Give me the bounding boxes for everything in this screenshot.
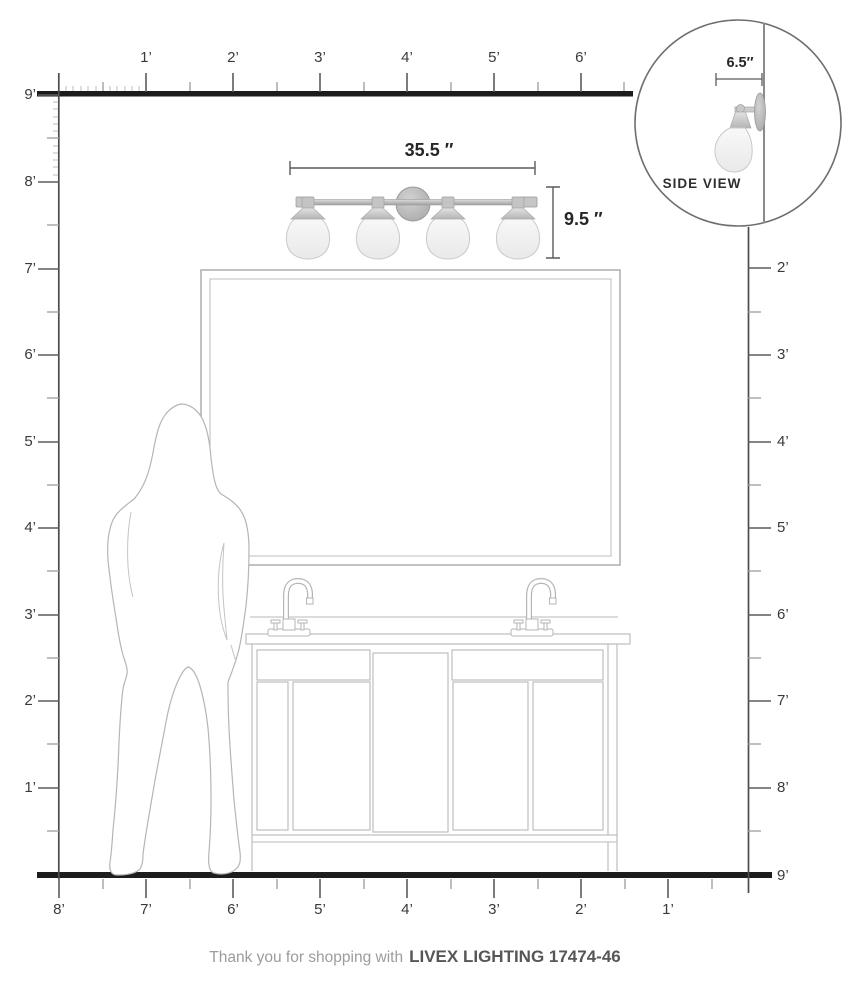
top-ruler-label: 4’ (401, 49, 413, 67)
top-ruler-label: 1’ (140, 49, 152, 67)
bottom-ruler-label: 8’ (53, 901, 65, 919)
top-ruler-label: 3’ (314, 49, 326, 67)
top-ruler-minor-ticks (103, 82, 624, 91)
footer-product-code: LIVEX LIGHTING 17474-46 (409, 947, 621, 966)
side-view-inset (635, 20, 841, 226)
glass-shade (286, 197, 329, 259)
left-ruler-label: 2’ (0, 692, 36, 710)
vanity-cabinet (246, 617, 630, 871)
left-ruler-label: 1’ (0, 779, 36, 797)
bottom-ruler (59, 879, 712, 898)
footer-thank-you-text: Thank you for shopping with (209, 949, 403, 966)
top-ruler-label: 6’ (575, 49, 587, 67)
left-ruler-label: 3’ (0, 606, 36, 624)
bottom-ruler-label: 7’ (140, 901, 152, 919)
fixture-height-dimension: 9.5 ″ (564, 209, 603, 230)
bottom-ruler-label: 3’ (488, 901, 500, 919)
glass-shade (426, 197, 469, 259)
right-ruler-label: 5’ (777, 519, 789, 537)
right-ruler-floor-label: 9’ (777, 867, 789, 885)
right-ruler-label: 7’ (777, 692, 789, 710)
bottom-ruler-label: 1’ (662, 901, 674, 919)
floor-line (37, 872, 772, 878)
fixture-bar (298, 200, 537, 206)
left-ruler-label: 5’ (0, 433, 36, 451)
height-dimension-line (546, 187, 560, 258)
ceiling-line (37, 91, 633, 97)
right-ruler-label: 2’ (777, 259, 789, 277)
glass-shade (356, 197, 399, 259)
footer-note: Thank you for shopping withLIVEX LIGHTIN… (0, 947, 830, 967)
width-dimension-line (290, 161, 535, 175)
fixture-width-dimension: 35.5 ″ (405, 140, 454, 161)
faucet-right (511, 581, 556, 636)
bottom-ruler-label: 5’ (314, 901, 326, 919)
bottom-ruler-label: 4’ (401, 901, 413, 919)
bottom-ruler-label: 2’ (575, 901, 587, 919)
right-ruler-label: 6’ (777, 606, 789, 624)
right-ruler-minor-ticks (748, 312, 761, 831)
top-ruler-label: 2’ (227, 49, 239, 67)
side-view-label: SIDE VIEW (663, 176, 742, 191)
mirror (201, 270, 620, 565)
vanity-light-fixture (286, 187, 539, 259)
left-ruler-label: 9’ (0, 86, 36, 104)
left-ruler-label: 8’ (0, 173, 36, 191)
faucet-left (268, 581, 313, 636)
right-ruler-label: 3’ (777, 346, 789, 364)
left-ruler (38, 73, 59, 879)
right-ruler-label: 8’ (777, 779, 789, 797)
left-ruler-label: 4’ (0, 519, 36, 537)
right-ruler-major-ticks (748, 268, 771, 788)
left-ruler-label: 6’ (0, 346, 36, 364)
top-ruler-label: 5’ (488, 49, 500, 67)
person-silhouette (108, 404, 249, 875)
diagram-canvas: 1’ 2’ 3’ 4’ 5’ 6’ 9’ 8’ 7’ 6’ 5’ 4’ 3’ 2… (0, 0, 854, 990)
right-ruler-label: 4’ (777, 433, 789, 451)
left-ruler-major-ticks (38, 95, 59, 788)
bottom-ruler-label: 6’ (227, 901, 239, 919)
fixture-depth-dimension: 6.5″ (726, 55, 753, 71)
top-ruler (66, 73, 624, 92)
left-ruler-minor-ticks (47, 138, 59, 831)
left-ruler-label: 7’ (0, 260, 36, 278)
right-ruler (748, 227, 771, 893)
